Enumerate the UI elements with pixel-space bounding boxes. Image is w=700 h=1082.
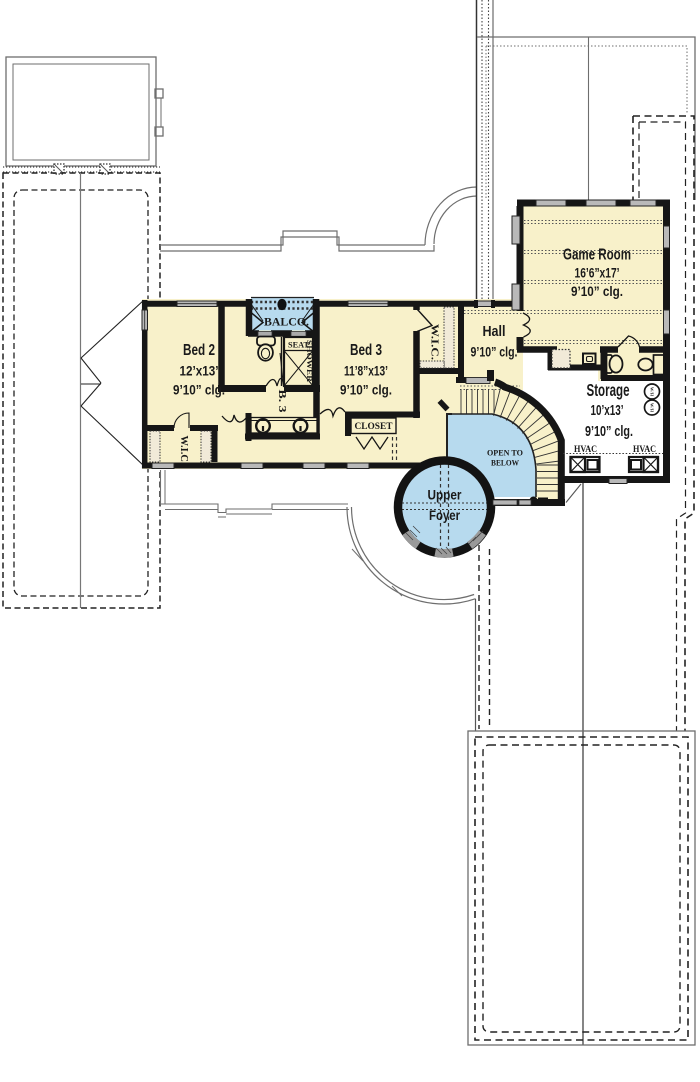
svg-text:9’10” clg.: 9’10” clg. <box>585 424 633 440</box>
svg-text:OPEN TO: OPEN TO <box>487 448 523 458</box>
svg-text:Game Room: Game Room <box>563 247 631 264</box>
svg-text:Bed 3: Bed 3 <box>350 342 382 359</box>
svg-text:W/H: W/H <box>650 403 655 413</box>
svg-text:9’10” clg.: 9’10” clg. <box>340 382 392 398</box>
svg-text:9’10” clg.: 9’10” clg. <box>571 283 623 299</box>
svg-text:W.I.C.: W.I.C. <box>178 436 189 466</box>
svg-text:SHOWER: SHOWER <box>305 340 314 383</box>
svg-text:12’x13’: 12’x13’ <box>180 363 219 379</box>
svg-text:HVAC: HVAC <box>633 444 656 454</box>
svg-text:Hall: Hall <box>483 323 506 340</box>
svg-text:Storage: Storage <box>587 380 630 400</box>
svg-text:16’6”x17’: 16’6”x17’ <box>575 265 620 281</box>
svg-text:9’10” clg.: 9’10” clg. <box>173 382 225 398</box>
svg-text:HVAC: HVAC <box>574 444 597 454</box>
svg-text:Bed 2: Bed 2 <box>183 342 215 359</box>
svg-text:CLOSET: CLOSET <box>355 422 394 432</box>
svg-text:BELOW: BELOW <box>491 458 519 468</box>
svg-text:10’x13’: 10’x13’ <box>591 403 624 419</box>
svg-text:BALCO.: BALCO. <box>264 317 309 329</box>
svg-text:9’10” clg.: 9’10” clg. <box>471 345 518 360</box>
svg-text:W/H: W/H <box>650 387 655 397</box>
svg-text:Foyer: Foyer <box>429 507 460 523</box>
svg-text:Upper: Upper <box>428 487 462 503</box>
svg-text:B. 3: B. 3 <box>276 390 287 413</box>
svg-text:11’8”x13’: 11’8”x13’ <box>344 363 388 379</box>
svg-text:W.I.C.: W.I.C. <box>429 324 440 360</box>
